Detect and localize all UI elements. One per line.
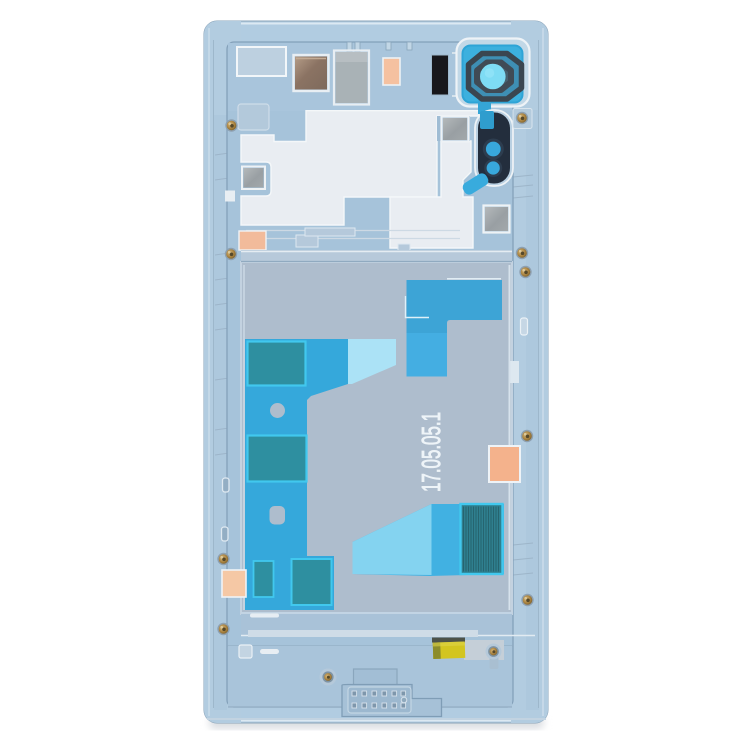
svg-text:17.05.05.1: 17.05.05.1	[416, 412, 446, 492]
